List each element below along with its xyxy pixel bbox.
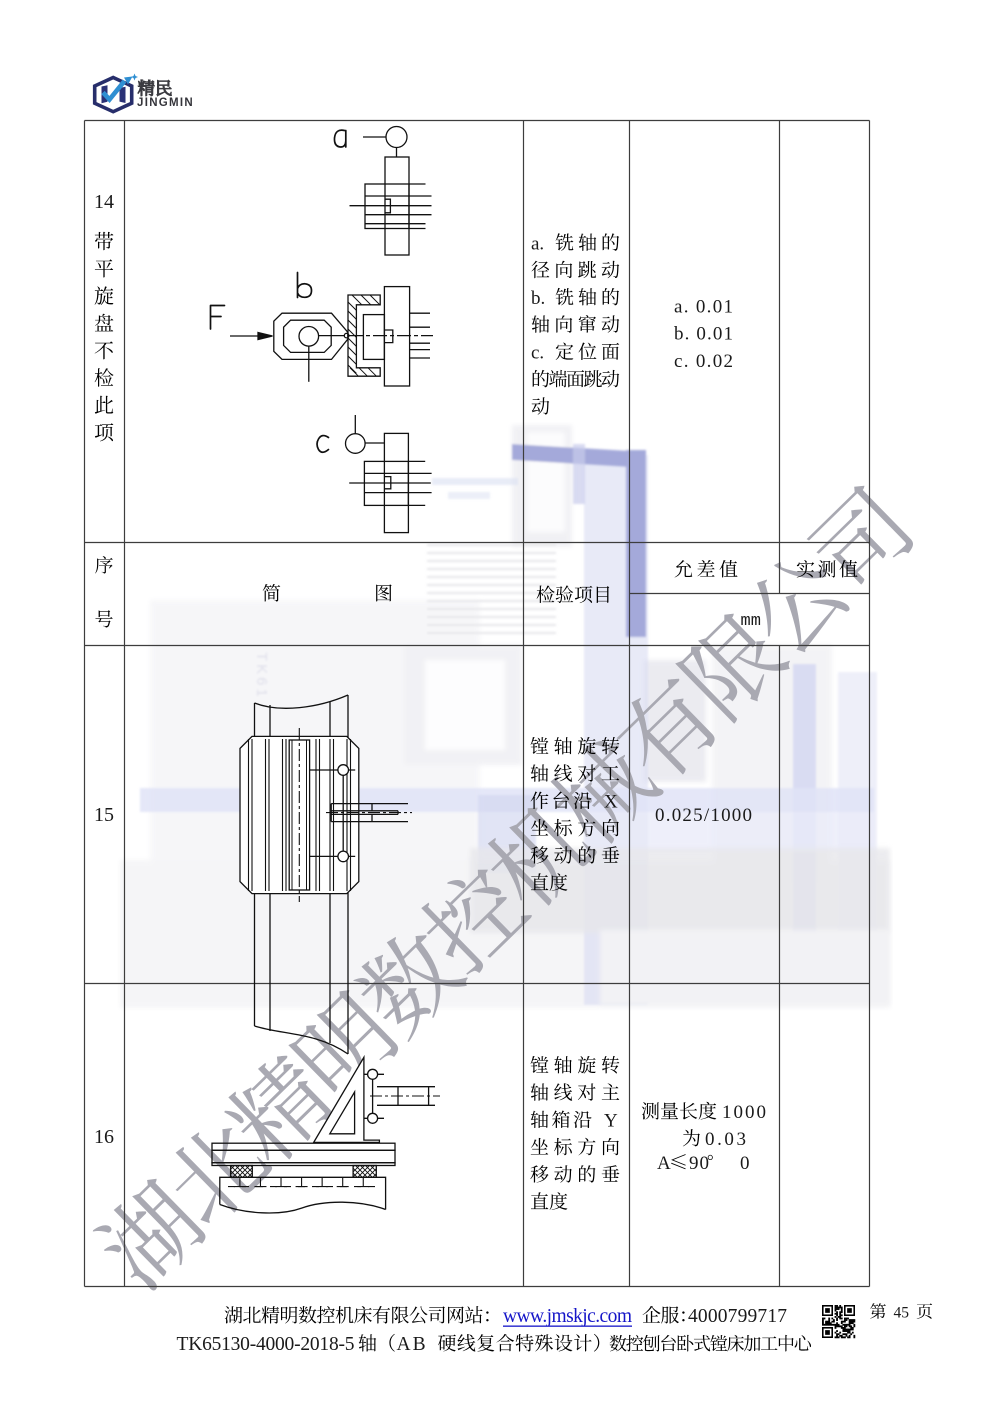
svg-text:JINGMIN: JINGMIN	[137, 97, 194, 109]
svg-text:www.jmskjc.com: www.jmskjc.com	[503, 1306, 632, 1327]
svg-text:15: 15	[94, 804, 114, 826]
svg-text:4000799717: 4000799717	[688, 1306, 787, 1327]
svg-text:14: 14	[94, 191, 114, 213]
svg-text:16: 16	[94, 1126, 114, 1148]
svg-text:X: X	[604, 792, 618, 813]
svg-text:AB: AB	[397, 1334, 428, 1355]
svg-text:b. 0.01: b. 0.01	[674, 324, 733, 345]
svg-text:TK61: TK61	[253, 652, 270, 700]
svg-text:1000: 1000	[722, 1102, 766, 1123]
svg-text:a.: a.	[531, 233, 544, 254]
svg-text:0.03: 0.03	[705, 1129, 746, 1150]
svg-text:TK65130-4000-2018-5: TK65130-4000-2018-5	[177, 1334, 355, 1355]
svg-text:c. 0.02: c. 0.02	[674, 351, 733, 372]
svg-text:A: A	[657, 1153, 671, 1174]
svg-text:45: 45	[894, 1305, 910, 1322]
svg-text:a. 0.01: a. 0.01	[674, 296, 733, 317]
svg-text:c.: c.	[531, 343, 544, 364]
svg-text:90: 90	[689, 1153, 709, 1174]
svg-text:b.: b.	[531, 288, 545, 309]
svg-text:0: 0	[740, 1153, 750, 1174]
svg-text:Y: Y	[604, 1111, 618, 1132]
svg-text:mm: mm	[741, 612, 761, 631]
svg-text:0.025/1000: 0.025/1000	[655, 805, 752, 826]
